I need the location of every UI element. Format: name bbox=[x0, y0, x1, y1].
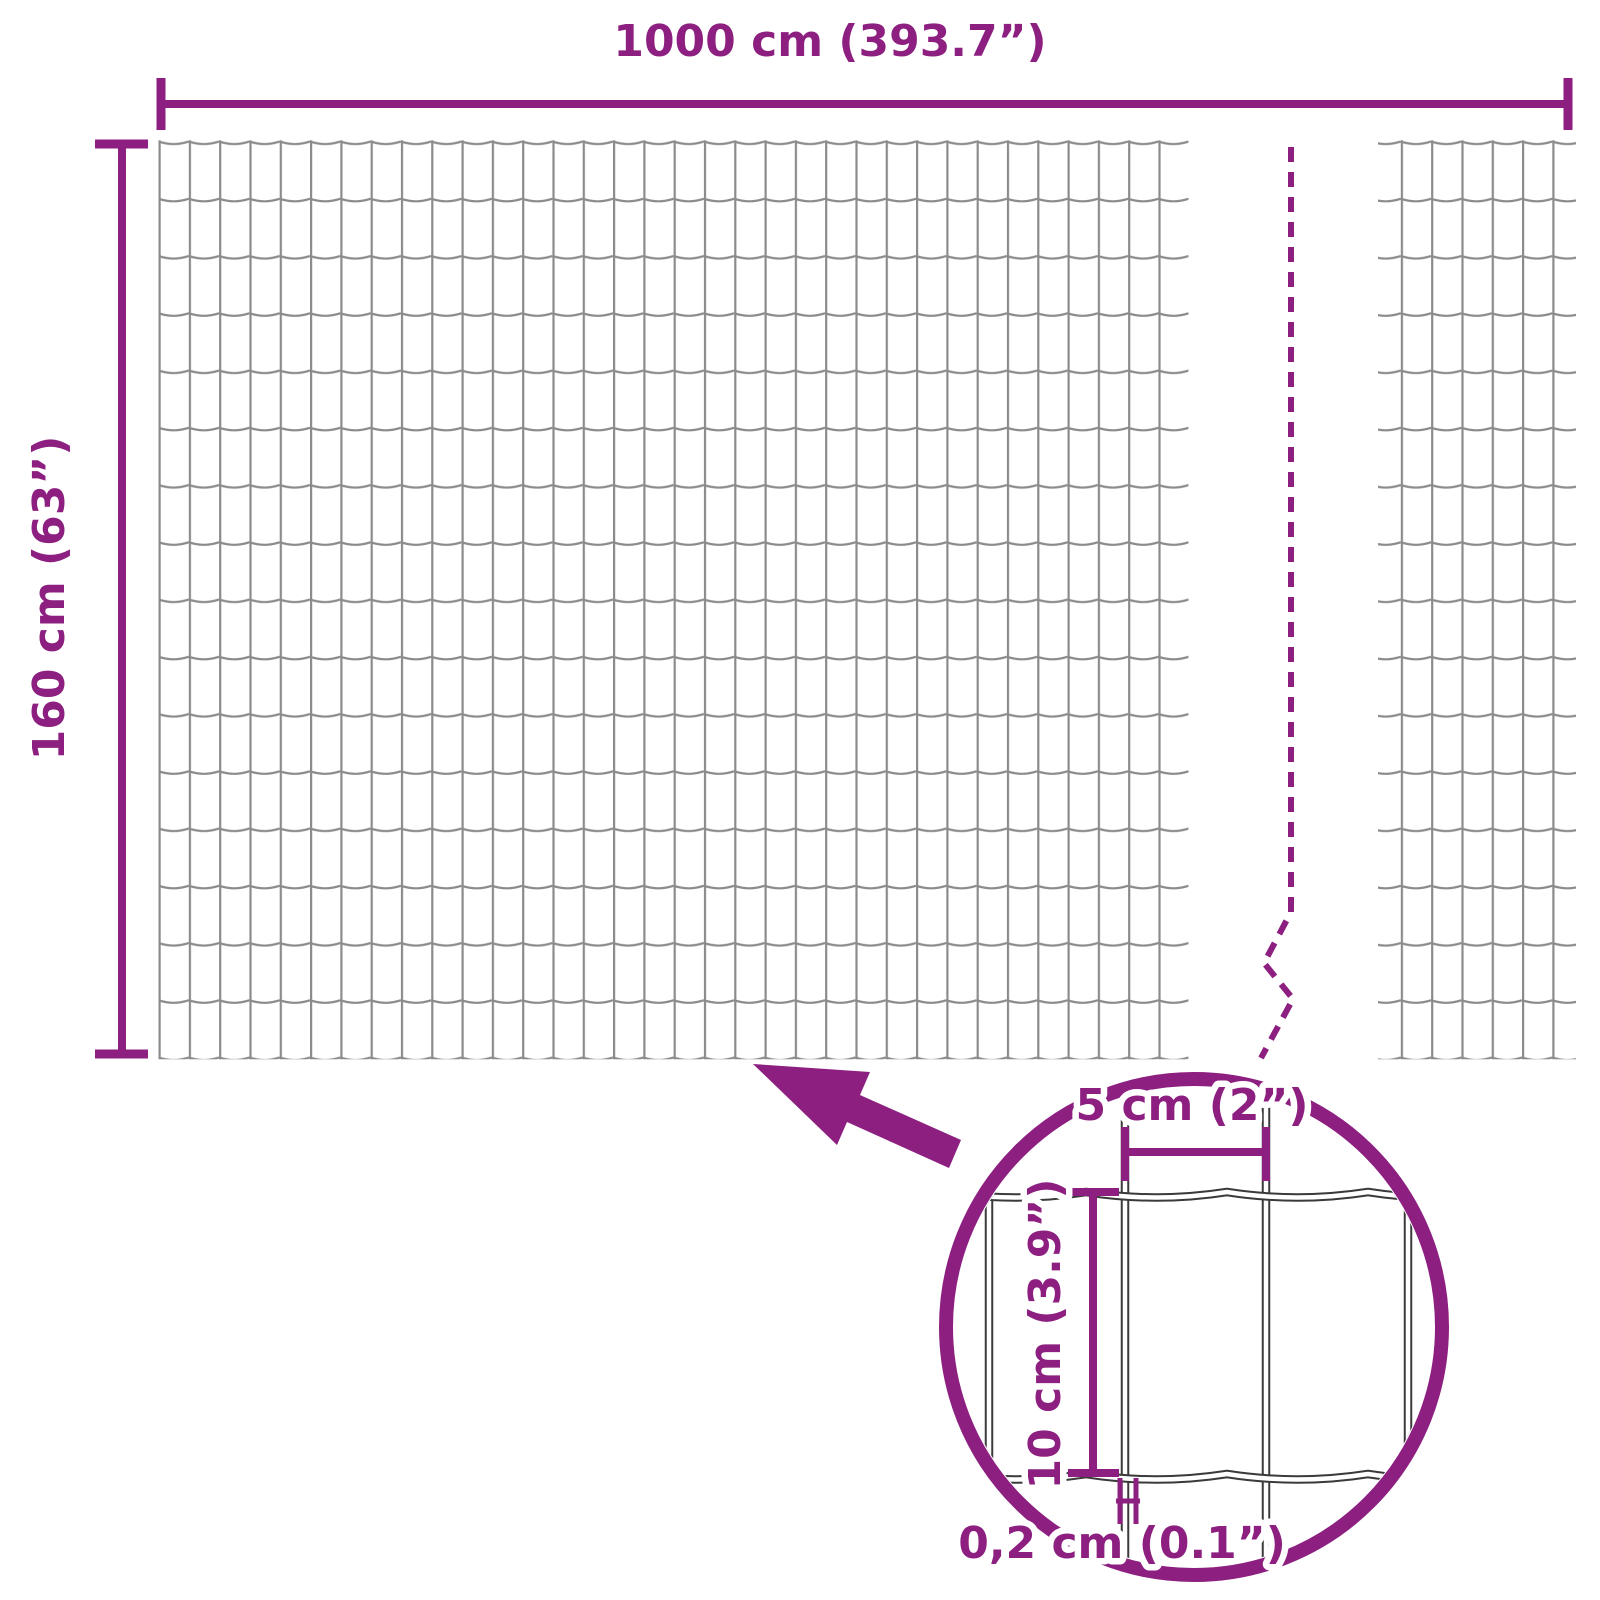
mesh-panel-main bbox=[159, 140, 1189, 1059]
cell-height-dimension: 10 cm (3.9”) bbox=[1020, 1179, 1119, 1490]
mesh-panel-right bbox=[1378, 140, 1576, 1059]
panel-break-dashed-line bbox=[1261, 147, 1293, 1058]
wire-thickness-label: 0,2 cm (0.1”) bbox=[958, 1518, 1286, 1569]
cell-height-label: 10 cm (3.9”) bbox=[1020, 1179, 1071, 1490]
height-dimension-label: 160 cm (63”) bbox=[24, 436, 75, 761]
cell-width-dimension: 5 cm (2”) bbox=[1076, 1080, 1309, 1181]
fence-dimension-diagram: 1000 cm (393.7”) 160 cm (63”) bbox=[0, 0, 1600, 1600]
height-dimension: 160 cm (63”) bbox=[24, 144, 148, 1054]
width-dimension: 1000 cm (393.7”) bbox=[161, 16, 1568, 130]
width-dimension-label: 1000 cm (393.7”) bbox=[613, 16, 1046, 67]
detail-lens: 5 cm (2”) 10 cm (3.9”) 0,2 cm (0.1”) bbox=[945, 1079, 1509, 1576]
cell-width-label: 5 cm (2”) bbox=[1076, 1080, 1309, 1131]
zoom-arrow bbox=[753, 1064, 961, 1168]
